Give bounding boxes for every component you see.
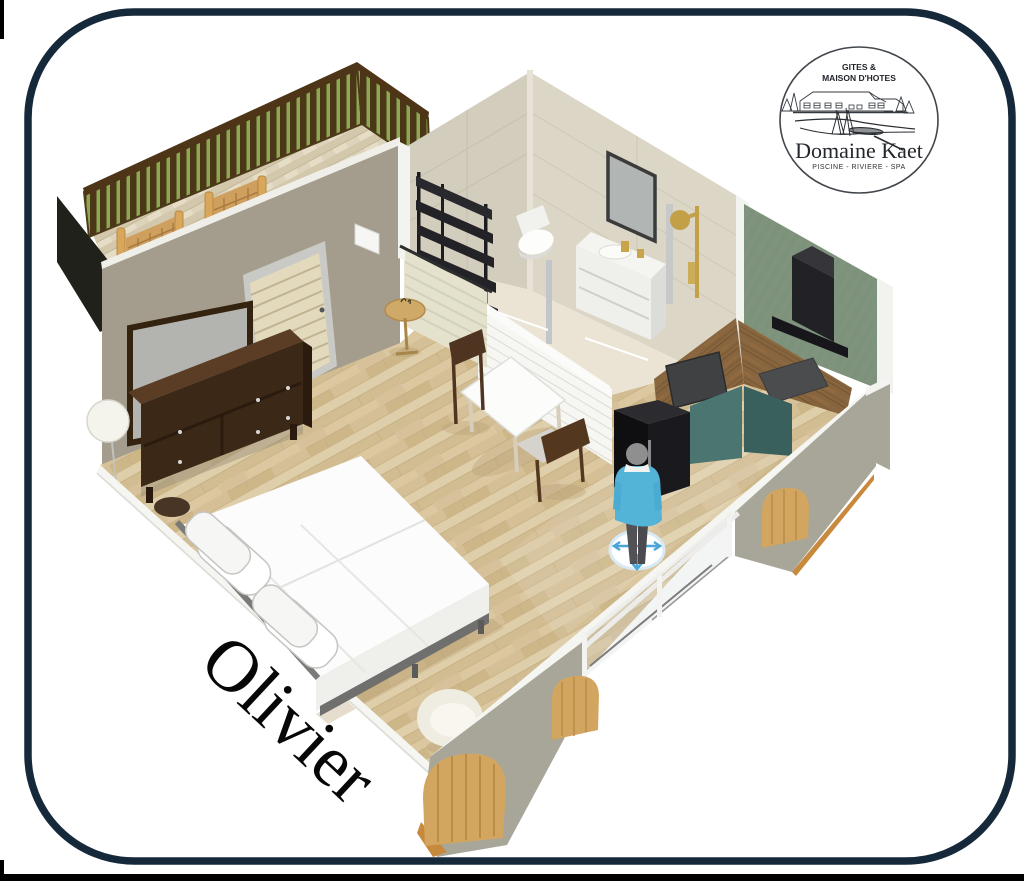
svg-text:GITES &: GITES & <box>842 62 876 72</box>
svg-text:PISCINE - RIVIERE - SPA: PISCINE - RIVIERE - SPA <box>812 164 905 171</box>
svg-text:Domaine Kaet: Domaine Kaet <box>795 138 923 163</box>
svg-text:MAISON D'HOTES: MAISON D'HOTES <box>822 73 896 83</box>
